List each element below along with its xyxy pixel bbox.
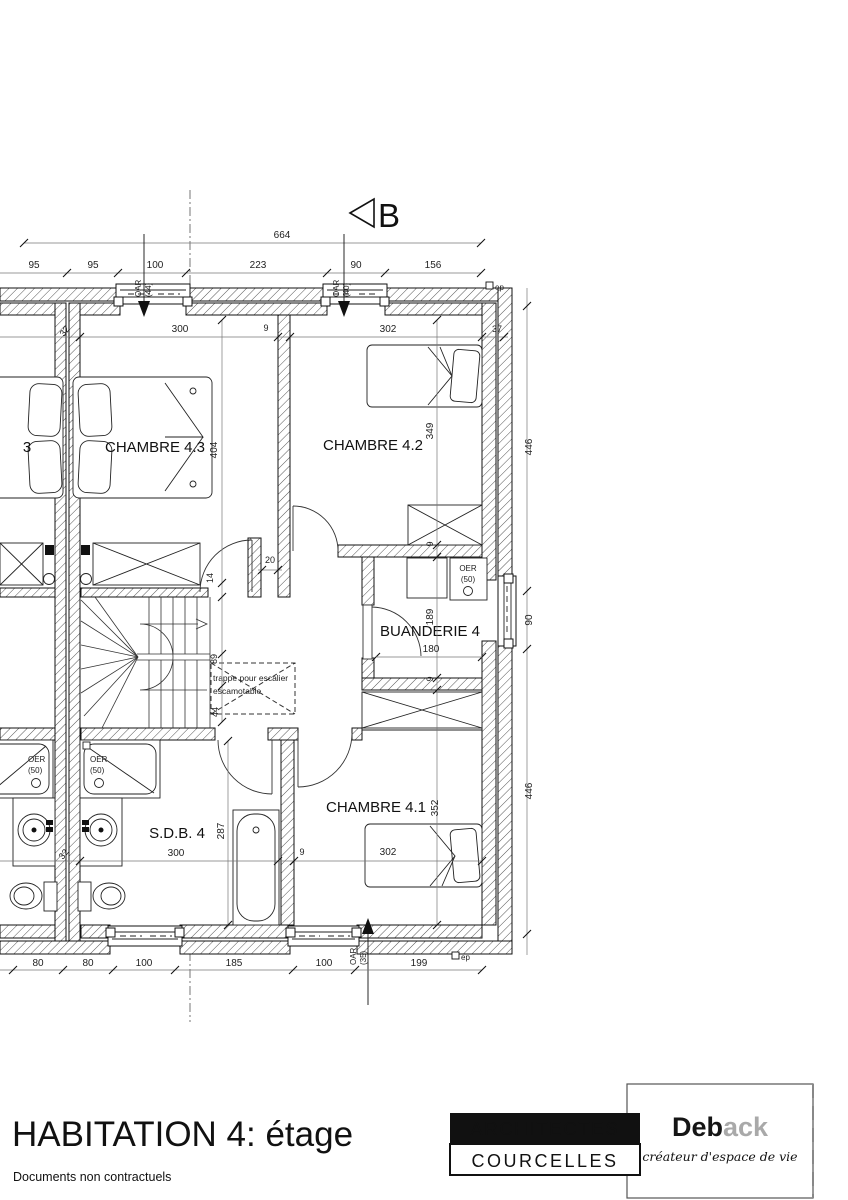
logo-text-dark: Deb: [672, 1112, 723, 1142]
bed-mirror-unit: [0, 377, 63, 498]
footer: HABITATION 4: étage Documents non contra…: [12, 1084, 813, 1198]
dim-bottom-3: 185: [226, 958, 243, 969]
window-top-left: [114, 284, 192, 306]
room-label-chambre-42: CHAMBRE 4.2: [323, 437, 423, 454]
dim-44: 44: [210, 707, 220, 717]
staircase: [81, 597, 210, 728]
logo-tagline: créateur d'espace de vie: [642, 1149, 797, 1164]
room-label-chambre-43: CHAMBRE 4.3: [105, 439, 205, 456]
closet-mirror-unit: [0, 543, 55, 585]
room-label-sdb: S.D.B. 4: [149, 825, 205, 842]
dim-top-3: 223: [250, 260, 267, 271]
door-sdb: [218, 740, 272, 794]
dim-buanderie-depth: 189: [425, 608, 436, 625]
firm-name-line1: ARCHITECTES: [470, 1119, 619, 1139]
floor-plan-page: B 664 95 95 100 223 90 156: [0, 0, 848, 1200]
window-bottom-left: [106, 926, 184, 946]
window-w2-size: (40): [342, 282, 351, 297]
dim-row1-3: 302: [380, 324, 397, 335]
toilet: [78, 882, 125, 911]
window-w4-type: OAR: [349, 947, 358, 965]
dim-c42-depth: 349: [425, 422, 436, 439]
bed-chambre-43: [73, 377, 212, 498]
oer-mirror-label: OER: [28, 755, 46, 764]
logo-text-gray: ack: [723, 1112, 769, 1142]
room-label-mirror-partial: 3: [23, 439, 31, 456]
toilet-mirror: [10, 882, 57, 911]
dim-bottom-4: 100: [316, 958, 333, 969]
dim-wall-9a: 9: [425, 541, 435, 546]
bed-chambre-42: [367, 345, 482, 407]
room-label-chambre-41: CHAMBRE 4.1: [326, 799, 426, 816]
window-w1-size: (44): [144, 282, 153, 297]
door-chambre-41: [298, 733, 352, 787]
bottom-dimensions: 80 80 100 185 100 199: [0, 958, 486, 974]
dim-right-2: 446: [524, 782, 535, 799]
section-arrow-icon: [350, 199, 374, 227]
dim-row2-2: 9: [299, 847, 304, 857]
dim-bottom-0: 80: [32, 958, 44, 969]
dim-14: 14: [205, 573, 215, 583]
dim-top-5: 156: [425, 260, 442, 271]
page-title: HABITATION 4: étage: [12, 1115, 353, 1154]
dim-20: 20: [265, 555, 275, 565]
shower: OER (50): [80, 740, 160, 798]
dim-row2-1: 300: [168, 848, 185, 859]
washbasin: [80, 798, 122, 866]
dim-row1-1: 300: [172, 324, 189, 335]
ep-label-top: ep: [495, 283, 504, 292]
dim-bottom-1: 80: [82, 958, 94, 969]
dim-c41-depth: 352: [430, 799, 441, 816]
oer-mirror-size: (50): [28, 766, 43, 775]
dim-right-0: 446: [524, 438, 535, 455]
top-dimensions: 664 95 95 100 223 90 156: [0, 230, 485, 277]
disclaimer: Documents non contractuels: [13, 1170, 171, 1184]
closet-chambre-42: [408, 505, 482, 545]
dim-right-1: 90: [524, 614, 535, 626]
firm-name-line2: COURCELLES: [471, 1151, 618, 1171]
section-marker-label: B: [378, 197, 400, 234]
bathtub: [233, 810, 279, 925]
closet-chambre-41: [362, 692, 482, 730]
logo-deback: Deback créateur d'espace de vie: [627, 1084, 813, 1198]
window-w2-type: OAR: [332, 279, 341, 297]
firm-badge: ARCHITECTES COURCELLES: [450, 1113, 640, 1175]
dim-top-4: 90: [350, 260, 362, 271]
closet-chambre-43: [81, 543, 201, 585]
dim-row2-3: 302: [380, 847, 397, 858]
washbasin-mirror: [13, 798, 55, 866]
trappe-note-line1: trappe pour escalier: [213, 673, 288, 683]
window-right: [498, 574, 516, 648]
buanderie-appliances: OER (50): [407, 558, 487, 600]
attic-hatch: trappe pour escalier escamotable: [211, 663, 295, 714]
oer-sdb-size: (50): [90, 766, 105, 775]
dim-top-1: 95: [87, 260, 99, 271]
dim-top-total: 664: [274, 230, 291, 241]
svg-text:Deback: Deback: [672, 1112, 769, 1142]
dim-top-2: 100: [147, 260, 164, 271]
floor-plan-drawing: B 664 95 95 100 223 90 156: [0, 0, 848, 1200]
dim-180: 180: [423, 644, 440, 655]
dim-top-0: 95: [28, 260, 40, 271]
window-bottom-right: [286, 926, 361, 946]
sdb-fixtures: OER (50) OER (50): [0, 740, 279, 925]
right-dim-column: 446 90 446: [523, 288, 535, 955]
ep-label-bottom: ep: [461, 953, 470, 962]
section-marker: B: [350, 197, 400, 234]
door-chambre-43: [200, 540, 252, 592]
window-w1-type: OAR: [134, 279, 143, 297]
dim-287: 287: [216, 822, 227, 839]
door-chambre-42: [293, 506, 338, 551]
flow-arrow-icon: [338, 234, 350, 317]
oer-sdb-label: OER: [90, 755, 108, 764]
oer-buanderie-size: (50): [461, 575, 476, 584]
dim-row1-2: 9: [263, 323, 268, 333]
oer-buanderie-label: OER: [459, 564, 477, 573]
dim-c43-depth: 404: [209, 441, 220, 458]
dim-row1-4: 37: [492, 324, 502, 334]
dim-buanderie-width: 180: [372, 644, 486, 661]
window-w4-size: (35): [359, 950, 368, 965]
dim-bottom-5: 199: [411, 958, 428, 969]
flow-arrow-icon: [138, 234, 150, 317]
dim-wall-9b: 9: [425, 676, 435, 681]
dim-89: 89: [209, 654, 219, 664]
shower-mirror: OER (50): [0, 740, 53, 798]
dim-bottom-2: 100: [136, 958, 153, 969]
